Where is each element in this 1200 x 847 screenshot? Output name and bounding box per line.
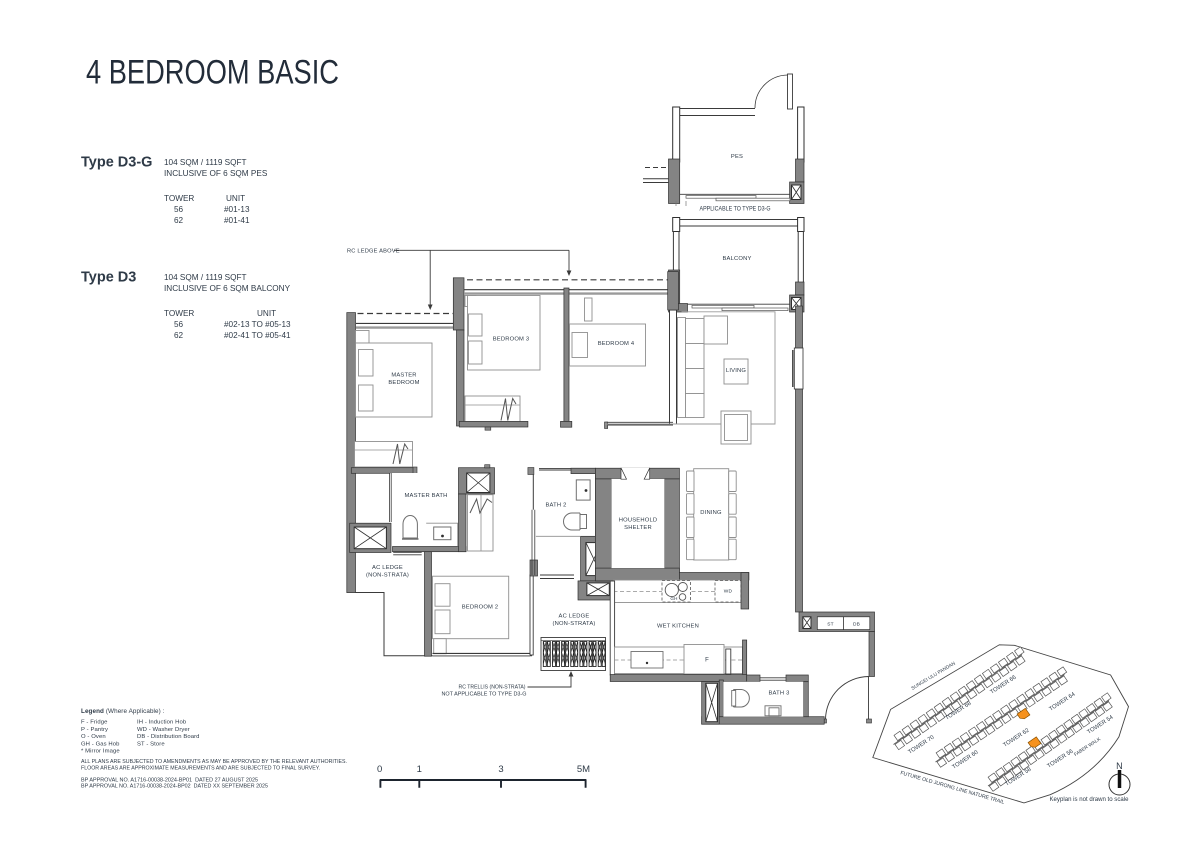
svg-text:NOT APPLICABLE TO TYPE D3-G: NOT APPLICABLE TO TYPE D3-G [442, 692, 527, 698]
svg-text:HOUSEHOLD: HOUSEHOLD [619, 518, 658, 524]
svg-text:4 BEDROOM BASIC: 4 BEDROOM BASIC [86, 54, 339, 92]
svg-text:MASTER BATH: MASTER BATH [405, 493, 448, 499]
svg-text:1: 1 [417, 764, 422, 775]
svg-text:O - Oven: O - Oven [81, 734, 106, 740]
svg-text:DINING: DINING [700, 510, 722, 516]
svg-text:104 SQM / 1119 SQFT: 104 SQM / 1119 SQFT [164, 273, 247, 282]
svg-text:BEDROOM 4: BEDROOM 4 [598, 341, 635, 347]
svg-text:56: 56 [174, 320, 184, 329]
svg-text:FLOOR AREAS ARE APPROXIMATE ME: FLOOR AREAS ARE APPROXIMATE MEASUREMENTS… [81, 766, 320, 772]
svg-text:62: 62 [174, 331, 184, 340]
svg-text:WD: WD [724, 589, 733, 595]
svg-text:* Mirror Image: * Mirror Image [81, 749, 120, 755]
svg-text:#01-13: #01-13 [224, 205, 250, 214]
svg-text:104 SQM / 1119 SQFT: 104 SQM / 1119 SQFT [164, 158, 247, 167]
svg-text:Keyplan is not drawn to scale: Keyplan is not drawn to scale [1050, 796, 1129, 803]
svg-text:RC LEDGE ABOVE: RC LEDGE ABOVE [347, 249, 400, 255]
svg-text:5M: 5M [577, 764, 590, 775]
svg-text:62: 62 [174, 216, 184, 225]
svg-text:P - Pantry: P - Pantry [81, 727, 108, 733]
svg-text:#02-13 TO #05-13: #02-13 TO #05-13 [224, 320, 291, 329]
svg-text:(NON-STRATA): (NON-STRATA) [552, 621, 595, 627]
svg-text:DB - Distribution Board: DB - Distribution Board [137, 734, 200, 740]
svg-text:AC LEDGE: AC LEDGE [372, 565, 403, 571]
svg-text:GH: GH [670, 596, 677, 601]
svg-text:WD - Washer Dryer: WD - Washer Dryer [137, 727, 190, 733]
svg-text:56: 56 [174, 205, 184, 214]
svg-text:ST - Store: ST - Store [137, 741, 165, 747]
svg-text:RC TRELLIS (NON-STRATA): RC TRELLIS (NON-STRATA) [459, 685, 526, 691]
svg-text:Type D3: Type D3 [81, 270, 136, 286]
svg-text:INCLUSIVE OF 6 SQM BALCONY: INCLUSIVE OF 6 SQM BALCONY [164, 284, 291, 293]
svg-text:APPLICABLE TO TYPE D3-G: APPLICABLE TO TYPE D3-G [700, 206, 771, 213]
svg-text:AC LEDGE: AC LEDGE [559, 614, 590, 620]
svg-text:#02-41 TO #05-41: #02-41 TO #05-41 [224, 331, 291, 340]
svg-text:TOWER: TOWER [164, 194, 194, 203]
svg-text:(NON-STRATA): (NON-STRATA) [366, 573, 409, 579]
svg-text:BATH 2: BATH 2 [545, 503, 566, 509]
svg-text:BP APPROVAL NO. A1716-00038-20: BP APPROVAL NO. A1716-00038-2024-BP02 DA… [81, 784, 269, 790]
svg-text:TOWER: TOWER [164, 309, 194, 318]
svg-text:BALCONY: BALCONY [722, 256, 751, 262]
svg-text:BEDROOM 2: BEDROOM 2 [462, 605, 499, 611]
svg-text:MASTER: MASTER [391, 373, 416, 379]
svg-text:UNIT: UNIT [257, 309, 276, 318]
svg-text:IH - Induction Hob: IH - Induction Hob [137, 720, 187, 726]
svg-text:UNIT: UNIT [226, 194, 245, 203]
svg-text:SHELTER: SHELTER [624, 525, 652, 531]
svg-text:BEDROOM: BEDROOM [388, 380, 419, 386]
svg-text:N: N [1116, 761, 1123, 771]
svg-text:BEDROOM 3: BEDROOM 3 [493, 337, 530, 343]
svg-text:Legend (Where Applicable) :: Legend (Where Applicable) : [81, 708, 165, 715]
svg-text:F - Fridge: F - Fridge [81, 720, 108, 726]
svg-text:ALL PLANS ARE SUBJECTED TO AME: ALL PLANS ARE SUBJECTED TO AMENDMENTS AS… [81, 759, 347, 765]
svg-text:INCLUSIVE OF 6 SQM PES: INCLUSIVE OF 6 SQM PES [164, 169, 268, 178]
svg-text:PES: PES [731, 154, 743, 160]
svg-text:DB: DB [853, 621, 860, 627]
svg-text:F: F [705, 658, 709, 664]
svg-text:LIVING: LIVING [726, 368, 746, 374]
svg-text:ST: ST [827, 621, 834, 627]
svg-text:0: 0 [377, 764, 382, 775]
svg-text:3: 3 [498, 764, 503, 775]
svg-text:#01-41: #01-41 [224, 216, 250, 225]
svg-text:GH - Gas Hob: GH - Gas Hob [81, 741, 120, 747]
svg-text:Type D3-G: Type D3-G [81, 155, 152, 171]
svg-text:WET KITCHEN: WET KITCHEN [657, 624, 699, 630]
svg-text:BATH 3: BATH 3 [768, 691, 789, 697]
